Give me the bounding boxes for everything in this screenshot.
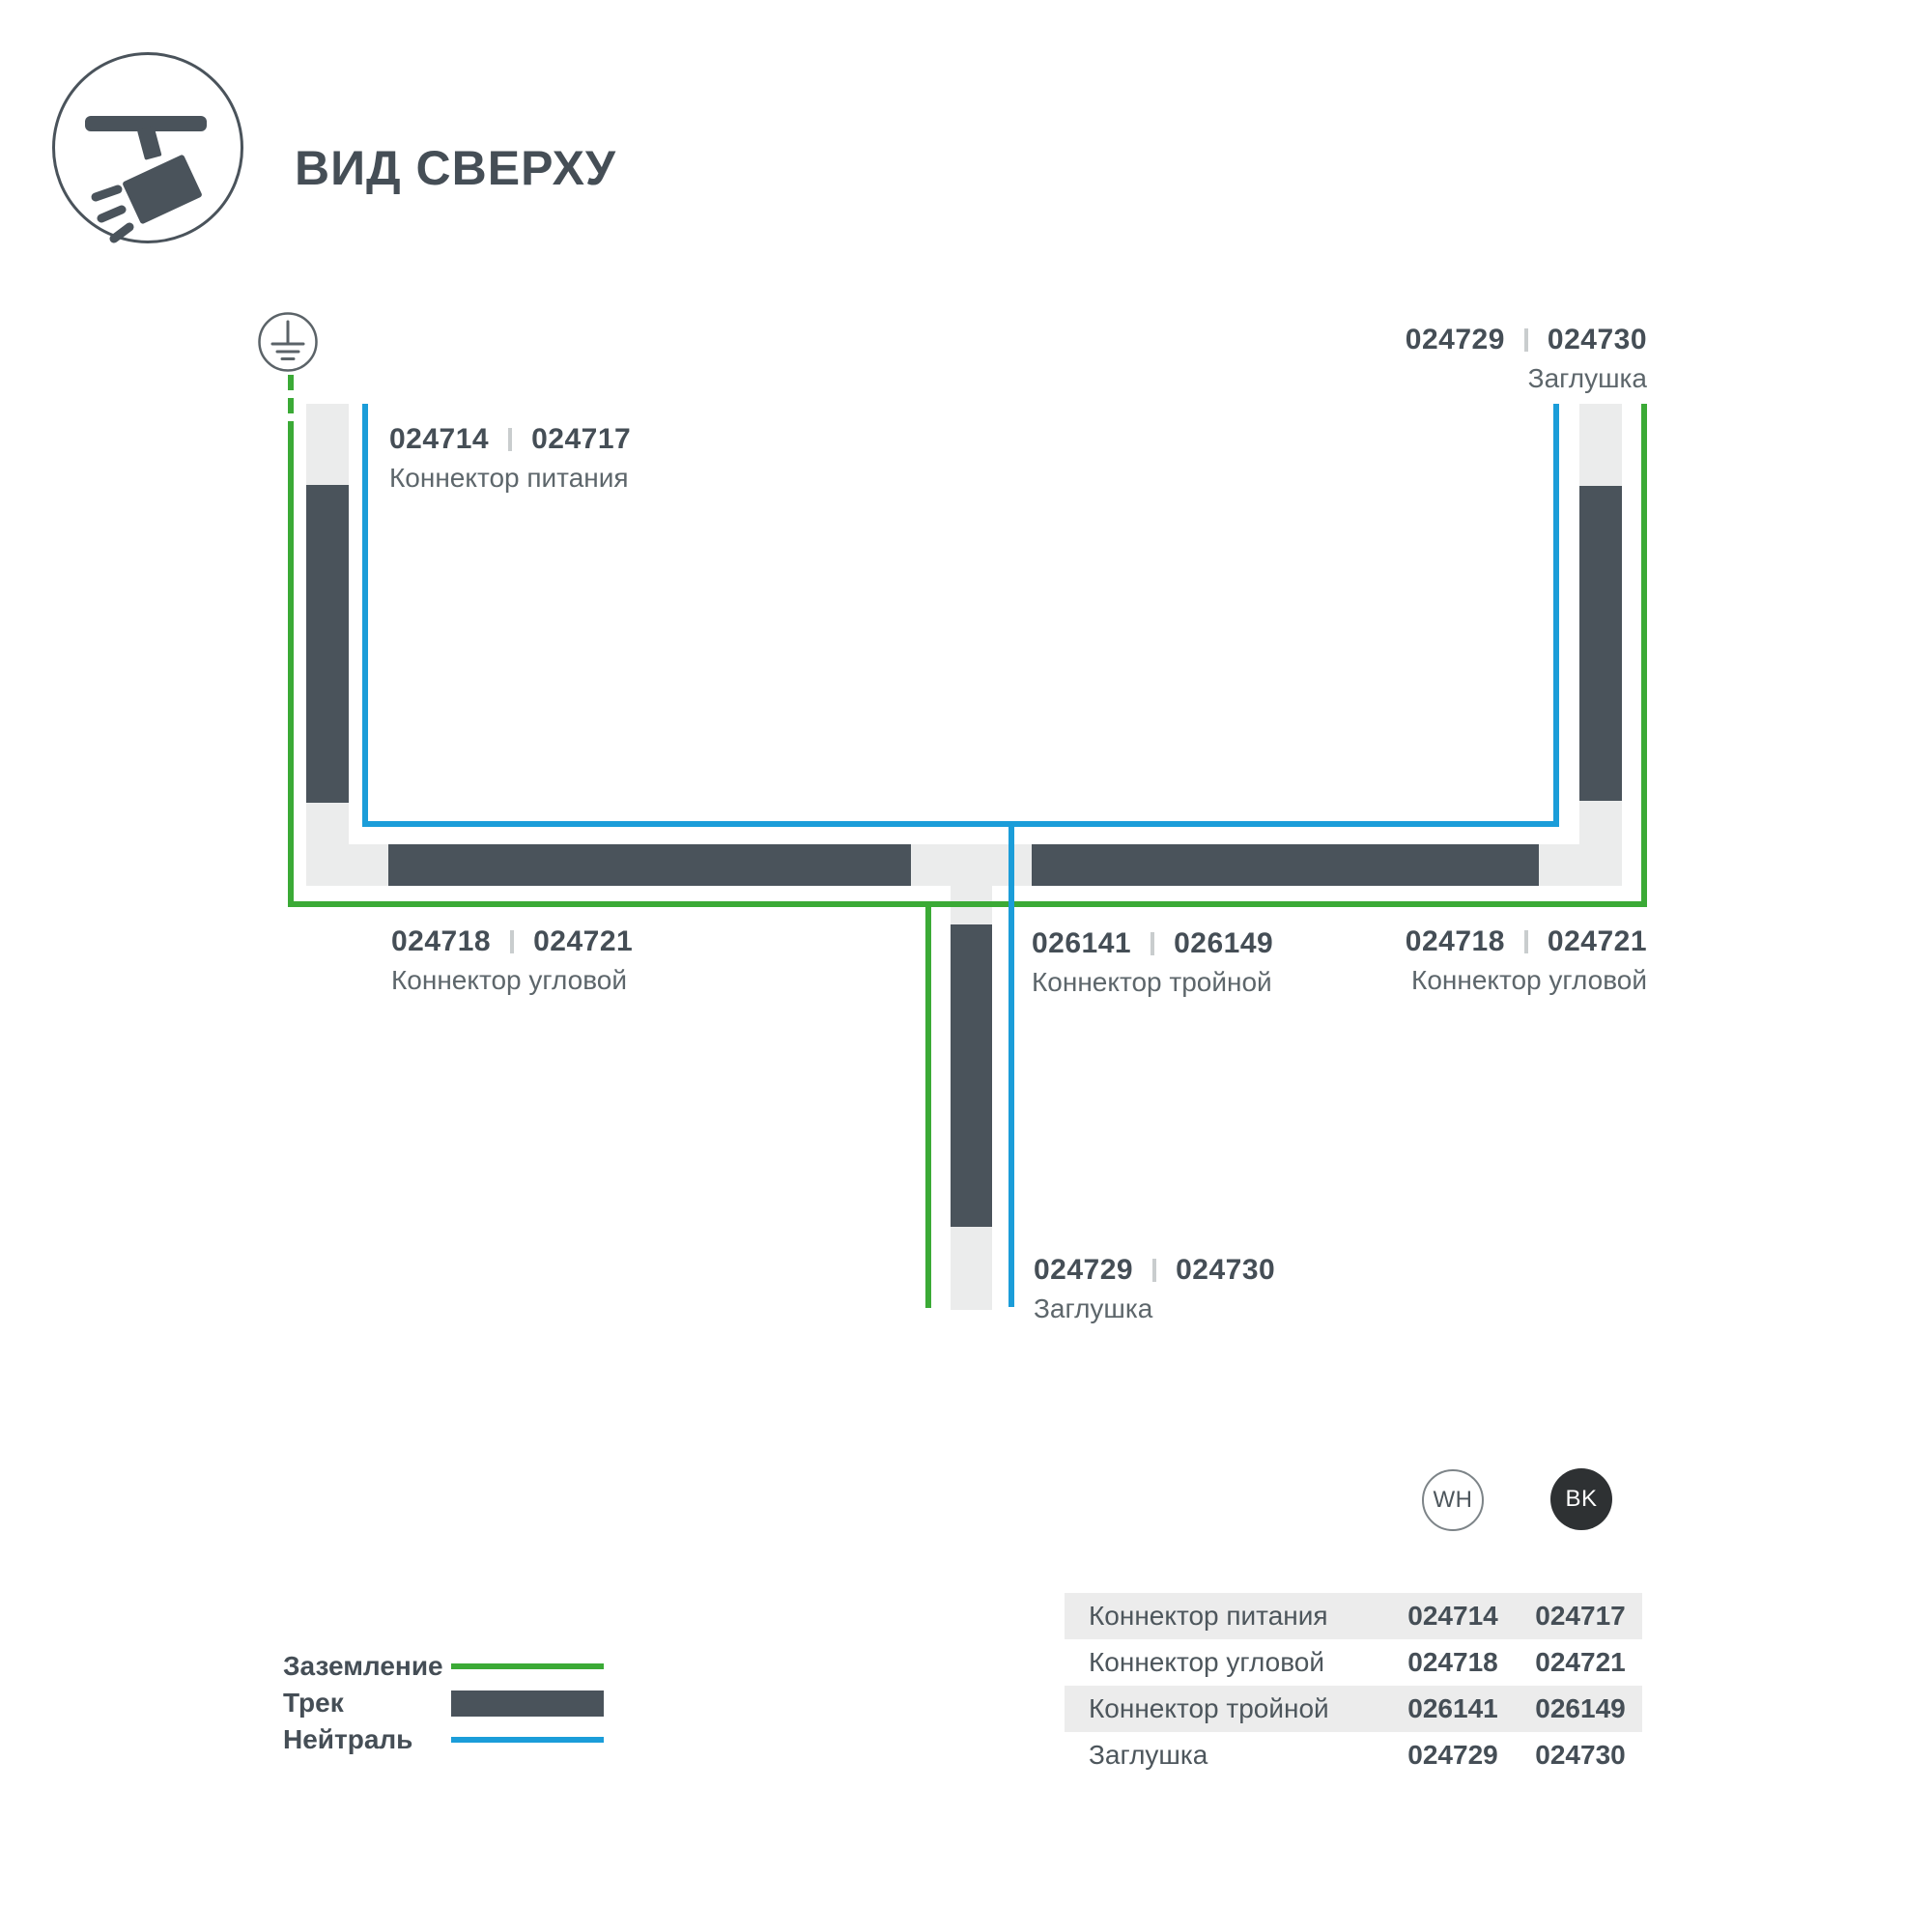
track-segment-bottom-right <box>1032 844 1539 886</box>
wh-code-cell: 024718 <box>1387 1647 1519 1678</box>
neutral-line-bottom <box>362 821 1559 827</box>
separator <box>1524 930 1528 953</box>
part-name: Коннектор питания <box>389 462 629 495</box>
bk-code-cell: 024717 <box>1519 1601 1642 1632</box>
bk-code-cell: 024721 <box>1519 1647 1642 1678</box>
ground-line-branch <box>925 907 931 1308</box>
table-row: Заглушка 024729 024730 <box>1065 1732 1642 1778</box>
variant-badge-black: BK <box>1550 1468 1612 1530</box>
part-name: Коннектор тройной <box>1032 966 1272 999</box>
neutral-line-right <box>1553 404 1559 827</box>
part-codes: 024729 024730 <box>1406 322 1647 358</box>
legend-label-ground: Заземление <box>283 1651 451 1682</box>
earth-ground-icon <box>257 311 319 373</box>
table-row: Коннектор угловой 024718 024721 <box>1065 1639 1642 1686</box>
code-wh: 024718 <box>1406 925 1505 958</box>
ground-line-right <box>1641 404 1647 904</box>
legend-swatch-ground <box>451 1663 604 1669</box>
separator <box>510 930 514 953</box>
separator <box>1524 328 1528 352</box>
part-name-cell: Коннектор питания <box>1065 1601 1387 1632</box>
table-row: Коннектор тройной 026141 026149 <box>1065 1686 1642 1732</box>
legend: Заземление Трек Нейтраль <box>283 1648 604 1758</box>
ground-line-dashed <box>288 375 294 421</box>
code-bk: 024730 <box>1176 1254 1275 1287</box>
top-view-icon-badge <box>52 52 243 243</box>
part-name: Коннектор угловой <box>391 964 627 997</box>
part-codes: 024729 024730 <box>1034 1252 1275 1289</box>
part-name-cell: Заглушка <box>1065 1740 1387 1771</box>
part-name: Заглушка <box>1034 1293 1152 1325</box>
part-codes: 024718 024721 <box>1406 923 1647 960</box>
track-segment-left <box>306 485 349 803</box>
label-endcap-top: 024729 024730 Заглушка <box>1406 322 1647 395</box>
separator <box>1152 1259 1156 1282</box>
table-row: Коннектор питания 024714 024717 <box>1065 1593 1642 1639</box>
legend-swatch-neutral <box>451 1737 604 1743</box>
code-bk: 024717 <box>531 423 631 456</box>
separator <box>508 428 512 451</box>
track-segment-right <box>1579 486 1622 801</box>
label-corner-connector-right: 024718 024721 Коннектор угловой <box>1406 923 1647 997</box>
part-codes: 024714 024717 <box>389 421 631 458</box>
ground-line-bottom <box>288 901 1647 907</box>
label-corner-connector-left: 024718 024721 Коннектор угловой <box>391 923 633 997</box>
page: ВИД СВЕРХУ 024714 024717 Коннектор питан… <box>0 0 1932 1932</box>
parts-table: Коннектор питания 024714 024717 Коннекто… <box>1065 1593 1642 1778</box>
legend-label-track: Трек <box>283 1688 451 1719</box>
code-wh: 024729 <box>1406 324 1505 356</box>
variant-badge-white: WH <box>1422 1469 1484 1531</box>
code-bk: 024730 <box>1548 324 1647 356</box>
track-segment-branch <box>951 924 992 1227</box>
bk-code-cell: 026149 <box>1519 1693 1642 1724</box>
part-codes: 026141 026149 <box>1032 925 1273 962</box>
track-spotlight-icon <box>52 52 243 243</box>
part-name-cell: Коннектор тройной <box>1065 1693 1387 1724</box>
code-wh: 026141 <box>1032 927 1131 960</box>
wh-code-cell: 024729 <box>1387 1740 1519 1771</box>
code-wh: 024729 <box>1034 1254 1133 1287</box>
part-name-cell: Коннектор угловой <box>1065 1647 1387 1678</box>
legend-label-neutral: Нейтраль <box>283 1724 451 1755</box>
neutral-line-branch <box>1009 827 1014 1307</box>
page-title: ВИД СВЕРХУ <box>295 145 616 191</box>
part-codes: 024718 024721 <box>391 923 633 960</box>
bk-code-cell: 024730 <box>1519 1740 1642 1771</box>
code-bk: 026149 <box>1174 927 1273 960</box>
code-bk: 024721 <box>1548 925 1647 958</box>
part-name: Заглушка <box>1528 362 1647 395</box>
label-tee-connector: 026141 026149 Коннектор тройной <box>1032 925 1273 999</box>
code-wh: 024718 <box>391 925 491 958</box>
track-segment-bottom-left <box>388 844 911 886</box>
legend-swatch-track <box>451 1690 604 1717</box>
wh-code-cell: 024714 <box>1387 1601 1519 1632</box>
code-bk: 024721 <box>533 925 633 958</box>
code-wh: 024714 <box>389 423 489 456</box>
part-name: Коннектор угловой <box>1411 964 1647 997</box>
label-power-connector: 024714 024717 Коннектор питания <box>389 421 631 495</box>
ground-line-left <box>288 421 294 907</box>
label-endcap-bottom: 024729 024730 Заглушка <box>1034 1252 1275 1325</box>
separator <box>1151 932 1154 955</box>
wh-code-cell: 026141 <box>1387 1693 1519 1724</box>
neutral-line-left <box>362 404 368 827</box>
